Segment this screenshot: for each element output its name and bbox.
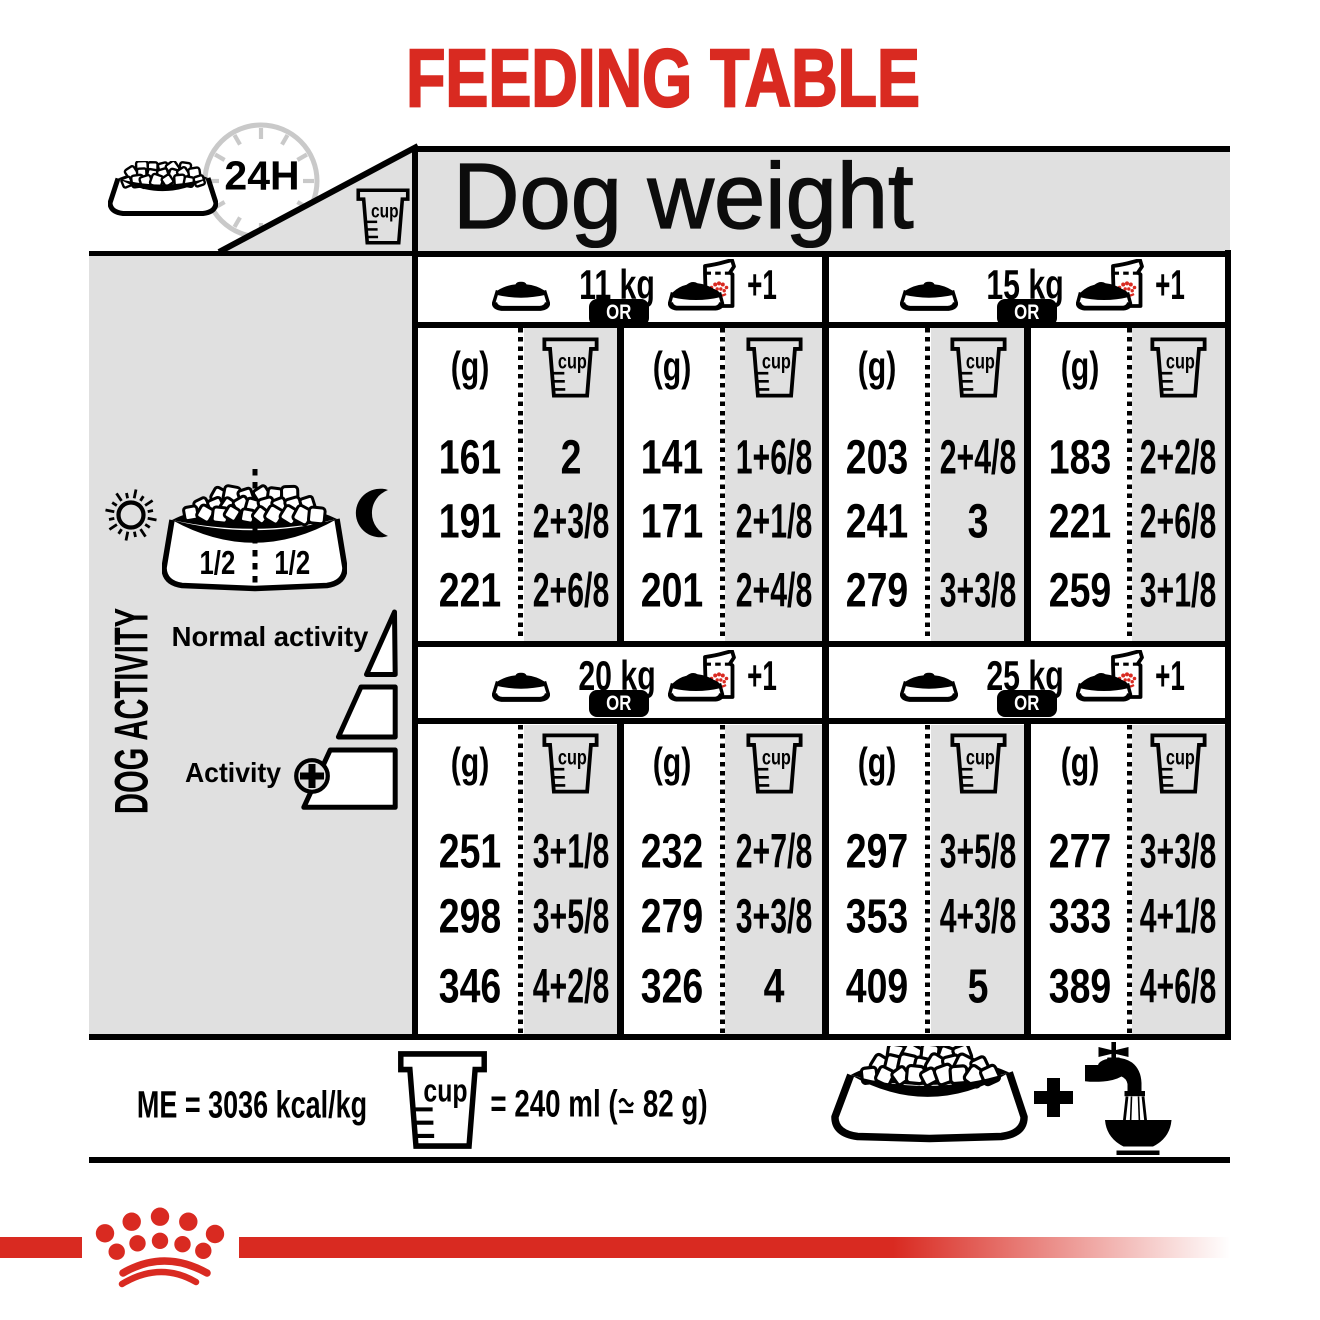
- svg-text:1/2: 1/2: [274, 545, 310, 582]
- svg-text:cup: cup: [558, 745, 587, 768]
- svg-text:cup: cup: [761, 745, 790, 768]
- svg-text:cup: cup: [558, 349, 587, 372]
- svg-text:cup: cup: [1165, 745, 1194, 768]
- svg-text:cup: cup: [965, 745, 994, 768]
- svg-text:cup: cup: [761, 349, 790, 372]
- svg-text:cup: cup: [1165, 349, 1194, 372]
- svg-text:cup: cup: [965, 349, 994, 372]
- svg-text:cup: cup: [371, 200, 399, 222]
- svg-text:1/2: 1/2: [199, 545, 235, 582]
